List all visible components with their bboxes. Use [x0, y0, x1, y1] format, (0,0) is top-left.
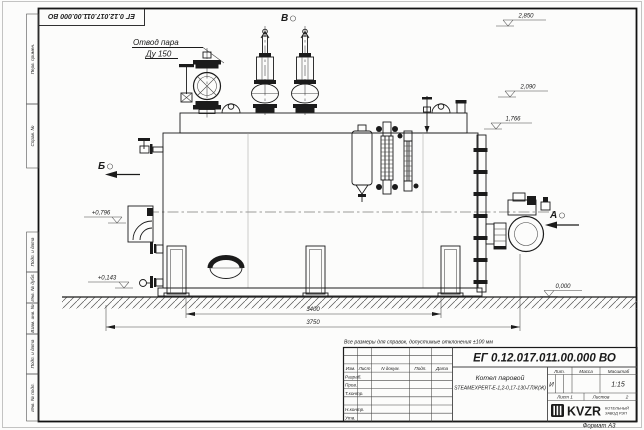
- ground-hatch: [62, 298, 637, 309]
- elevation-0000: 0,000: [540, 284, 582, 297]
- elevation-2850-value: 2,850: [517, 14, 534, 20]
- logo-text: KVZR: [567, 405, 601, 419]
- view-label-b: Б: [98, 161, 140, 178]
- col-list: Лист: [358, 366, 371, 371]
- side-stamp-sprav-no: Справ. №: [30, 126, 35, 147]
- front-nozzles: [128, 138, 163, 288]
- elevation-0000-value: 0,000: [555, 284, 571, 290]
- col-data: Дата: [435, 366, 449, 371]
- burner-assembly: [486, 193, 550, 252]
- side-stamp-inv-dubl: Инв. № дубл.: [30, 273, 35, 301]
- company-line2: ЗАВОД РЭП: [605, 412, 627, 416]
- callout-line2: Ду 150: [145, 50, 172, 59]
- title-doc-number: ЕГ 0.12.017.011.00.000 ВО: [473, 353, 616, 365]
- elevation-0143-value: +0,143: [98, 276, 117, 282]
- top-casing-strip: [180, 113, 467, 133]
- lit-header: Лит.: [553, 369, 565, 374]
- format-label: Формат А3: [583, 424, 616, 430]
- company-logo: KVZR КОТЕЛЬНЫЙ ЗАВОД РЭП: [551, 404, 629, 419]
- col-izm: Изм.: [346, 366, 356, 371]
- sheets-value: 2: [625, 395, 629, 400]
- boiler-general-view-drawing: ЕГ 0.12.017.011.00.000 ВО Перв. примен. …: [0, 0, 644, 430]
- dimension-3400-value: 3400: [306, 307, 320, 313]
- safety-valve-1: [252, 26, 279, 118]
- dimension-3750: 3750: [106, 254, 520, 331]
- elevation-1766: 1,766: [484, 117, 532, 130]
- col-ndokum: N докум.: [381, 366, 400, 371]
- general-note: Все размеры для справок, допустимые откл…: [344, 340, 493, 346]
- massa-header: Масса: [579, 369, 593, 374]
- row-utv: Утв.: [345, 415, 355, 420]
- scale-value: 1:15: [611, 382, 625, 389]
- row-tkontr: Т.контр.: [345, 391, 364, 396]
- blower-housing: [509, 217, 544, 252]
- elevation-0143: +0,143: [88, 276, 133, 289]
- boiler-side-view: [62, 26, 637, 309]
- bypass-handwheel: [179, 64, 194, 102]
- elevation-0796-value: +0,796: [92, 211, 111, 217]
- product-name: Котел паровой: [476, 374, 525, 382]
- row-nkontr: Н.контр.: [345, 407, 364, 412]
- ground: [62, 297, 637, 309]
- level-vessel: [352, 125, 372, 202]
- row-prov: Пров.: [345, 383, 357, 388]
- manhole: [210, 258, 242, 279]
- company-line1: КОТЕЛЬНЫЙ: [605, 407, 629, 411]
- feedwater-elbow: [128, 206, 153, 242]
- water-level-gauges: [352, 96, 432, 202]
- side-stamp-perv-primen: Перв. примен.: [30, 44, 35, 75]
- view-label-a: А: [545, 210, 579, 229]
- side-nozzle: [150, 242, 163, 254]
- corner-doc-number: ЕГ 0.12.017.011.00.000 ВО: [48, 12, 135, 19]
- view-b-arrow: [105, 171, 117, 178]
- elevation-2850: 2,850: [496, 14, 546, 27]
- elevation-2090: 2,090: [498, 85, 548, 98]
- callout-line1: Отвод пара: [133, 38, 179, 47]
- corner-stamp: ЕГ 0.12.017.011.00.000 ВО: [39, 9, 145, 26]
- view-v-letter: В: [281, 13, 288, 24]
- title-block: Изм. Лист N докум. Подп. Дата Разраб. Пр…: [344, 348, 638, 422]
- elevation-2090-value: 2,090: [519, 85, 536, 91]
- rear-flange: [474, 135, 488, 292]
- gauge-glass-2: [398, 131, 419, 191]
- lit-value: И: [549, 382, 554, 389]
- base-rail: [158, 288, 482, 296]
- elevation-0796: +0,796: [84, 211, 126, 224]
- steam-outlet-valve: [179, 48, 221, 120]
- view-a-letter: А: [549, 210, 557, 221]
- sheet-number: Лист 1: [556, 395, 573, 400]
- side-stamps: Перв. примен. Справ. № Подп. и дата Инв.…: [27, 14, 39, 421]
- dimension-3750-value: 3750: [306, 320, 320, 326]
- side-stamp-inv-podl: Инв. № подл.: [30, 383, 35, 412]
- elevation-1766-value: 1,766: [505, 117, 521, 123]
- col-podp: Подп.: [414, 366, 426, 371]
- drain-valve: [140, 276, 164, 288]
- callout-steam-outlet: Отвод пара Ду 150: [132, 38, 224, 63]
- view-a-arrow: [545, 222, 557, 229]
- front-top-valve: [138, 138, 163, 154]
- side-stamp-podp-data-2: Подп. и дата: [30, 339, 35, 368]
- masshtab-header: Масштаб: [608, 369, 630, 374]
- view-b-letter: Б: [98, 161, 105, 172]
- side-stamp-podp-data-1: Подп. и дата: [30, 237, 35, 266]
- support-legs: [164, 246, 463, 297]
- sheets-label: Листов: [592, 395, 610, 400]
- product-model: STEAMEXPERT-Е-1,2-0,17-130-ГЛЖ(Ж): [454, 386, 546, 392]
- view-label-v: В: [281, 13, 296, 24]
- level-probe: [422, 96, 432, 133]
- safety-valve-2: [292, 26, 319, 118]
- row-razrab: Разраб.: [345, 374, 362, 379]
- drawing-sheet: ЕГ 0.12.017.011.00.000 ВО Перв. примен. …: [0, 0, 644, 430]
- side-stamp-vzam-inv: Взам. инв. №: [30, 304, 35, 332]
